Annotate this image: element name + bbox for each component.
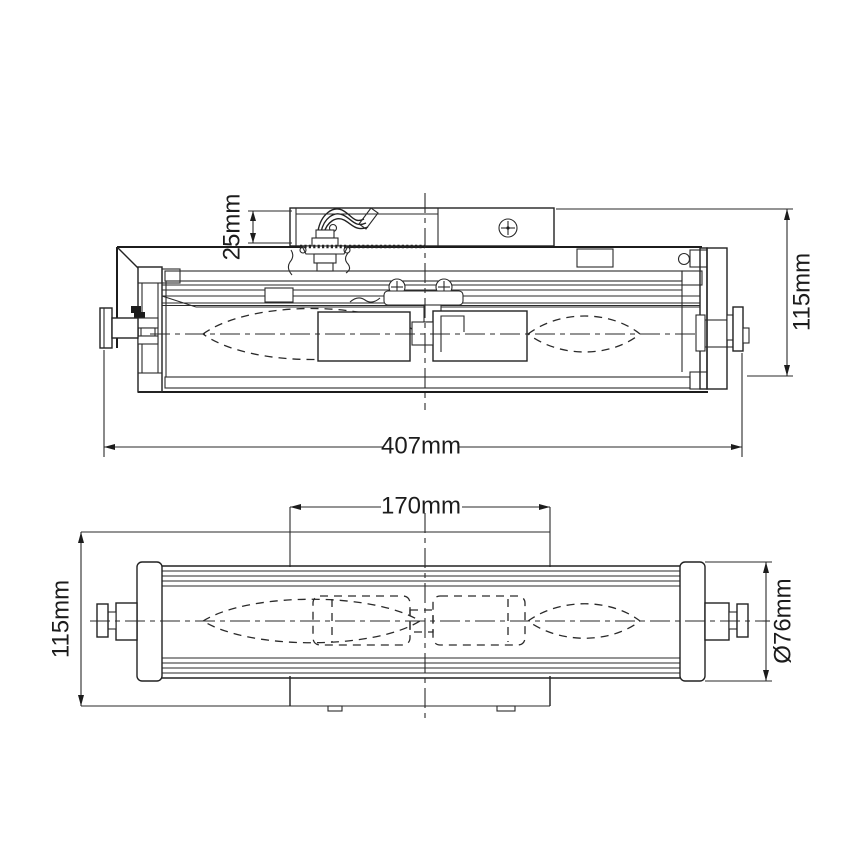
drawing-canvas: 25mm 115mm 407mm [0, 0, 868, 868]
dim-label-backplate-width: 170mm [381, 492, 461, 519]
dim-label-bracket-depth: 25mm [218, 194, 245, 261]
bracket-screw-icon [499, 219, 517, 237]
dim-label-backplate-height: 115mm [47, 580, 74, 658]
dim-label-tube-diameter: Ø76mm [769, 578, 796, 663]
technical-drawing-page: 25mm 115mm 407mm [0, 0, 868, 868]
dim-label-overall-width: 407mm [381, 432, 461, 459]
dim-label-overall-height: 115mm [788, 253, 815, 331]
